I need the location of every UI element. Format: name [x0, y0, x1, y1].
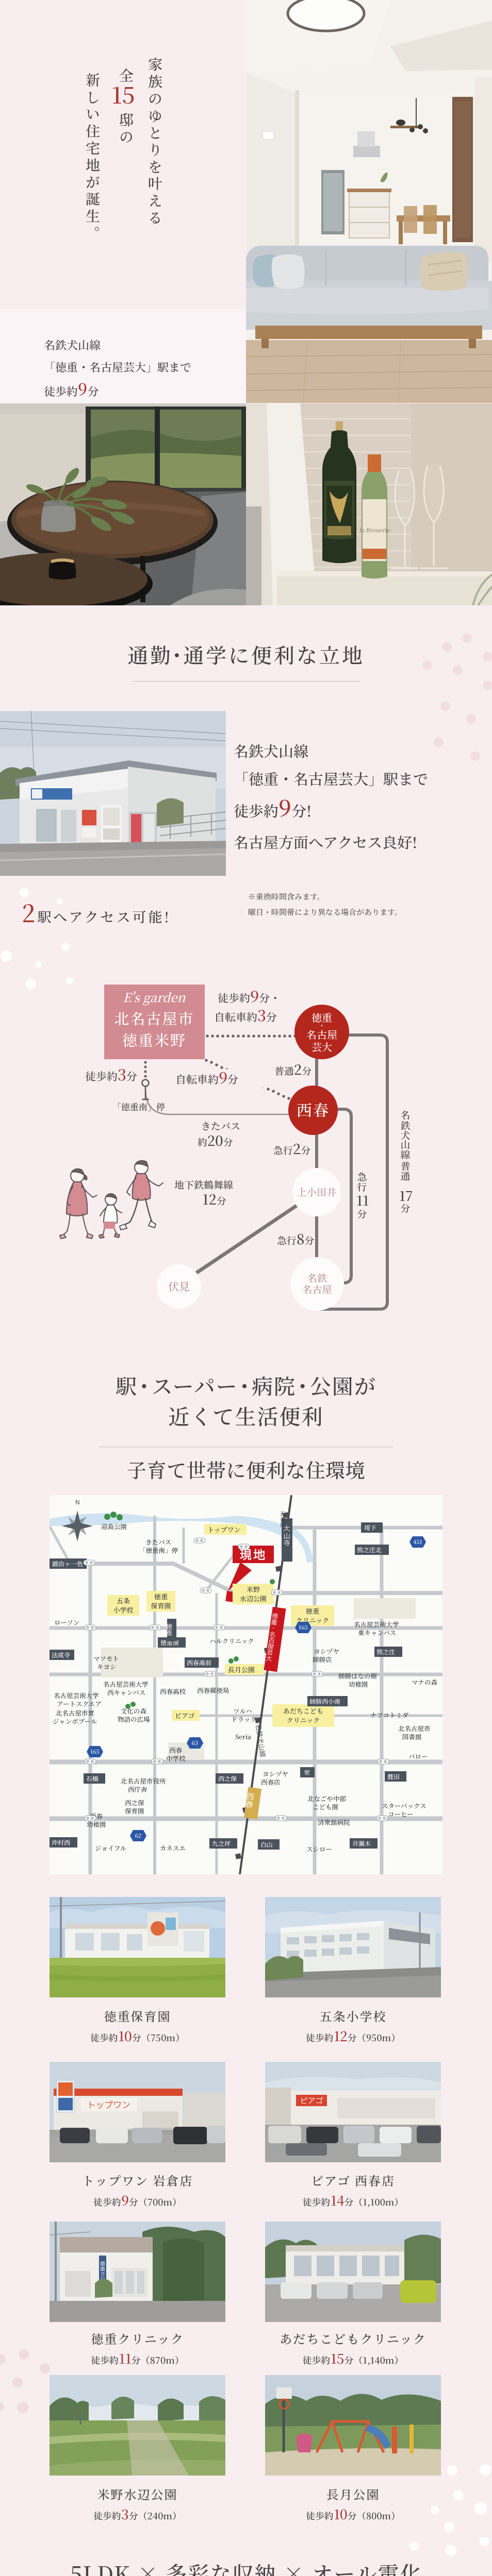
- svg-text:マナの森: マナの森: [412, 1677, 438, 1687]
- svg-text:鍛治ヶ一色: 鍛治ヶ一色: [52, 1560, 83, 1568]
- svg-text:キヨシ: キヨシ: [97, 1662, 117, 1671]
- svg-text:Seria: Seria: [235, 1732, 252, 1741]
- svg-text:伏見: 伏見: [168, 1279, 190, 1294]
- svg-text:栄: 栄: [304, 1768, 310, 1777]
- svg-text:上小田井: 上小田井: [297, 1185, 336, 1199]
- svg-text:ジョイフル: ジョイフル: [95, 1843, 127, 1853]
- svg-text:幼稚園: 幼稚園: [87, 1820, 106, 1829]
- svg-text:コーヒー: コーヒー: [388, 1809, 414, 1819]
- svg-text:トップワン: トップワン: [87, 2099, 131, 2112]
- svg-text:現地: 現地: [240, 1547, 267, 1565]
- svg-text:西春: 西春: [297, 1098, 330, 1121]
- svg-text:E's garden: E's garden: [123, 988, 186, 1006]
- svg-text:芸大: 芸大: [311, 1039, 332, 1054]
- svg-text:こども園: こども園: [313, 1802, 338, 1811]
- svg-text:ピアゴ: ピアゴ: [175, 1710, 194, 1720]
- svg-text:徳重米野: 徳重米野: [122, 1029, 186, 1050]
- svg-text:西春: 西春: [243, 1792, 257, 1809]
- svg-text:西春郵便局: 西春郵便局: [197, 1686, 229, 1695]
- svg-text:ローソン: ローソン: [54, 1618, 80, 1627]
- svg-text:分: 分: [399, 1204, 413, 1213]
- svg-text:徳重: 徳重: [154, 1591, 168, 1601]
- svg-text:普通2分: 普通2分: [274, 1059, 311, 1079]
- svg-text:急行8分: 急行8分: [277, 1228, 314, 1248]
- svg-text:長月公園: 長月公園: [228, 1665, 255, 1674]
- svg-text:井瀬木: 井瀬木: [352, 1839, 371, 1848]
- svg-text:名鉄犬山線: 名鉄犬山線: [399, 1110, 413, 1160]
- svg-text:63: 63: [192, 1739, 199, 1747]
- svg-text:法成寺: 法成寺: [52, 1651, 70, 1659]
- svg-text:「徳重南」停: 「徳重南」停: [139, 1546, 178, 1555]
- svg-text:ドラッグ: ドラッグ: [231, 1715, 257, 1724]
- svg-text:165: 165: [90, 1748, 100, 1756]
- svg-text:62: 62: [135, 1832, 142, 1840]
- svg-text:西春高校: 西春高校: [160, 1687, 186, 1696]
- svg-text:保育園: 保育園: [151, 1601, 171, 1611]
- svg-text:自転車約9分: 自転車約9分: [175, 1065, 238, 1088]
- svg-text:西春高前: 西春高前: [187, 1658, 212, 1667]
- svg-text:師勝店: 師勝店: [313, 1655, 332, 1664]
- svg-text:五条川: 五条川: [278, 1511, 287, 1528]
- svg-text:ピアゴ: ピアゴ: [300, 2095, 323, 2107]
- svg-text:バロー: バロー: [408, 1752, 428, 1761]
- svg-text:急行2分: 急行2分: [273, 1138, 310, 1158]
- svg-text:北名古屋市: 北名古屋市: [114, 1008, 194, 1029]
- svg-text:図書館: 図書館: [402, 1732, 422, 1741]
- svg-text:ナフコトミダ: ナフコトミダ: [370, 1710, 409, 1720]
- svg-text:堤下: 堤下: [364, 1523, 376, 1532]
- svg-text:九之坪: 九之坪: [212, 1839, 231, 1848]
- svg-text:小学校: 小学校: [113, 1605, 134, 1615]
- svg-text:西キャンパス: 西キャンパス: [107, 1688, 145, 1697]
- svg-text:東キャンパス: 東キャンパス: [358, 1628, 396, 1637]
- svg-text:徳重: 徳重: [306, 1606, 320, 1616]
- svg-text:西春店: 西春店: [261, 1777, 281, 1787]
- svg-text:熊之庄: 熊之庄: [376, 1648, 395, 1656]
- svg-text:熊之庄北: 熊之庄北: [357, 1546, 382, 1554]
- svg-text:la Brouette: la Brouette: [359, 526, 390, 534]
- svg-text:あだちこども: あだちこども: [283, 1706, 323, 1716]
- svg-text:17: 17: [399, 1186, 413, 1205]
- svg-text:11: 11: [356, 1191, 369, 1210]
- svg-text:トップワン: トップワン: [207, 1524, 241, 1534]
- svg-text:幼稚園: 幼稚園: [349, 1680, 368, 1689]
- svg-text:五条: 五条: [117, 1596, 130, 1605]
- svg-text:白山: 白山: [260, 1840, 273, 1849]
- svg-text:水辺公園: 水辺公園: [240, 1594, 267, 1603]
- svg-text:普通: 普通: [399, 1161, 413, 1181]
- svg-text:スシロー: スシロー: [306, 1844, 332, 1854]
- svg-text:済衆館病院: 済衆館病院: [318, 1818, 350, 1827]
- svg-text:「徳重南」停: 「徳重南」停: [112, 1100, 165, 1113]
- svg-text:N: N: [75, 1498, 80, 1507]
- svg-text:西庁舎: 西庁舎: [128, 1785, 147, 1794]
- svg-text:徒歩約9分・: 徒歩約9分・: [218, 984, 281, 1007]
- svg-text:アートスクエア: アートスクエア: [57, 1699, 102, 1708]
- svg-text:徒歩約3分: 徒歩約3分: [85, 1062, 137, 1085]
- svg-text:西之保: 西之保: [218, 1774, 237, 1783]
- svg-text:カネスエ: カネスエ: [160, 1843, 186, 1853]
- svg-text:自転車約3分: 自転車約3分: [214, 1003, 277, 1026]
- svg-text:ハルクリニック: ハルクリニック: [209, 1636, 254, 1646]
- svg-text:165: 165: [299, 1623, 308, 1632]
- svg-text:中学校: 中学校: [166, 1754, 186, 1763]
- svg-text:米野: 米野: [247, 1584, 260, 1594]
- svg-text:師勝西小南: 師勝西小南: [309, 1697, 341, 1706]
- svg-text:鹿田: 鹿田: [387, 1772, 400, 1781]
- svg-text:大山寺: 大山寺: [282, 1525, 292, 1547]
- svg-text:沖村西: 沖村西: [52, 1838, 71, 1847]
- svg-text:451: 451: [413, 1538, 422, 1546]
- svg-text:分: 分: [355, 1209, 369, 1219]
- svg-text:急行: 急行: [355, 1172, 369, 1192]
- svg-text:徳重: 徳重: [165, 1623, 174, 1635]
- svg-text:物語の広場: 物語の広場: [118, 1715, 150, 1724]
- svg-text:迎島公園: 迎島公園: [101, 1522, 127, 1531]
- svg-text:ジャンボプール: ジャンボプール: [53, 1717, 97, 1726]
- svg-text:石橋: 石橋: [86, 1774, 99, 1783]
- svg-text:保育園: 保育園: [125, 1806, 144, 1816]
- svg-text:クリニック: クリニック: [287, 1715, 320, 1725]
- svg-text:名古屋: 名古屋: [302, 1282, 332, 1296]
